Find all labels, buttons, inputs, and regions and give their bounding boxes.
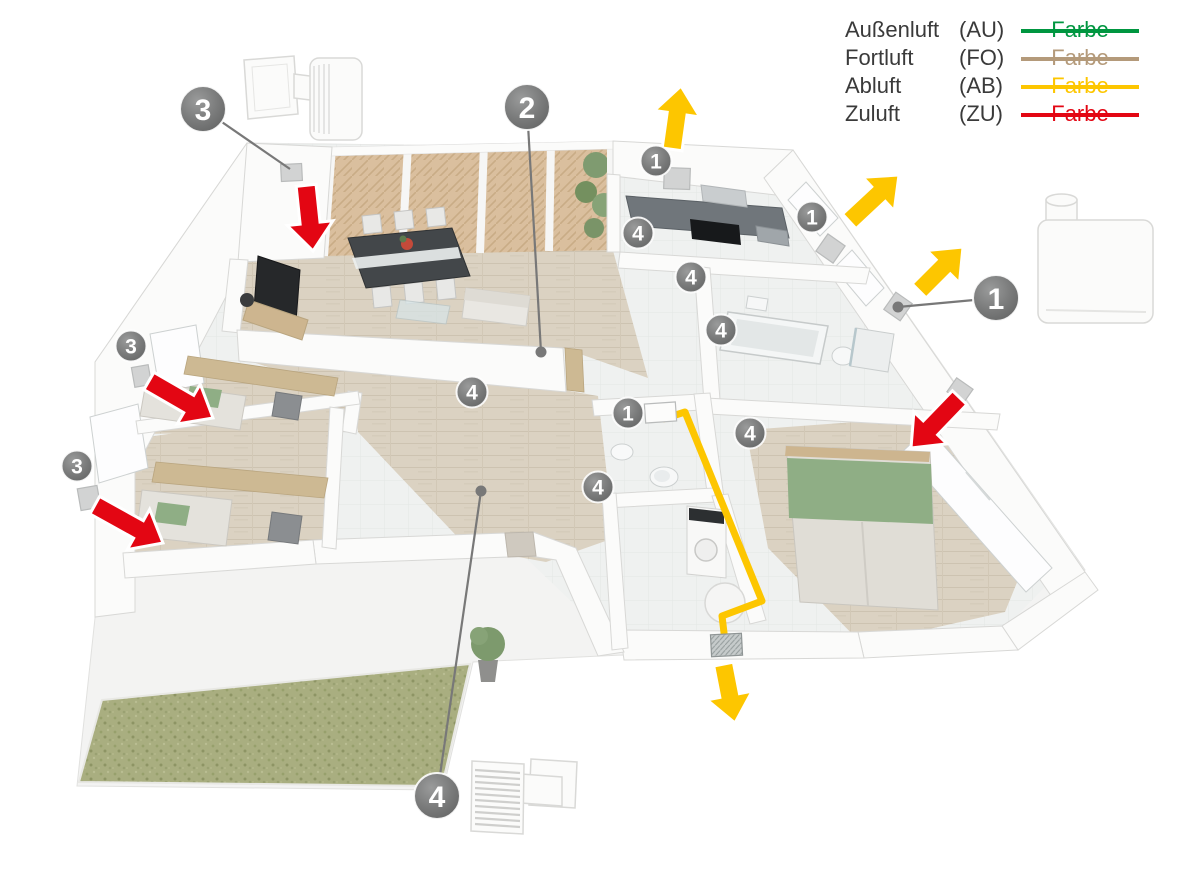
front-door-opening <box>505 532 536 557</box>
callout-marker-1: 1 <box>797 202 828 233</box>
wall-front-bedroom-right <box>858 626 1018 658</box>
legend-swatch-text: Farbe <box>1021 101 1139 127</box>
legend-code: (FO) <box>959 45 1021 71</box>
plant-pot <box>478 660 498 682</box>
marker-number: 1 <box>650 151 662 174</box>
wall-kitchen-left <box>607 174 620 252</box>
marker-number: 4 <box>632 223 644 246</box>
callout-marker-1: 1 <box>613 398 644 429</box>
bed-right <box>785 446 938 610</box>
stool-bedroom-1 <box>272 392 302 420</box>
legend-label: Zuluft <box>845 101 959 127</box>
legend-label: Außenluft <box>845 17 959 43</box>
entrance-plant <box>470 627 505 682</box>
leader-dot <box>536 347 547 358</box>
legend-code: (AB) <box>959 73 1021 99</box>
legend-row: Fortluft (FO) Farbe <box>845 44 1145 72</box>
airflow-arrow-abluft-exhaust <box>649 83 703 153</box>
legend-swatch-text: Farbe <box>1021 73 1139 99</box>
legend-row: Außenluft (AU) Farbe <box>845 16 1145 44</box>
callout-marker-3: 3 <box>116 331 147 362</box>
wc-sink <box>611 444 633 460</box>
supply-air-valve <box>281 163 303 181</box>
marker-number: 4 <box>685 267 697 290</box>
legend-swatch: Farbe <box>1021 16 1139 44</box>
device-wall-unit <box>244 56 362 140</box>
plant-bush-2 <box>470 627 488 645</box>
callout-marker-2: 2 <box>504 84 550 130</box>
flower-leaves <box>400 236 407 243</box>
callout-marker-4: 4 <box>414 773 460 819</box>
callout-marker-4: 4 <box>676 262 707 293</box>
grille-tube <box>521 774 562 806</box>
callout-marker-4: 4 <box>623 218 654 249</box>
marker-number: 1 <box>988 283 1005 316</box>
marker-number: 4 <box>744 423 756 446</box>
legend-label: Fortluft <box>845 45 959 71</box>
marker-number: 4 <box>592 477 604 500</box>
callout-marker-4: 4 <box>583 472 614 503</box>
leader-dot <box>893 302 904 313</box>
window-bedroom-2 <box>90 404 148 483</box>
callout-marker-4: 4 <box>735 418 766 449</box>
legend-code: (AU) <box>959 17 1021 43</box>
fan-box-body <box>1038 220 1153 323</box>
marker-number: 1 <box>622 403 634 426</box>
shower-tray <box>850 328 894 372</box>
leader-dot <box>476 486 487 497</box>
ventilation-floorplan-diagram: 321433144141444 Außenluft (AU) <box>0 0 1181 886</box>
marker-number: 3 <box>71 456 83 479</box>
bath-sink <box>746 296 768 311</box>
wall-unit-head <box>310 58 362 140</box>
airflow-arrow-abluft-exhaust <box>903 231 979 307</box>
callout-marker-3: 3 <box>62 451 93 482</box>
legend-label: Abluft <box>845 73 959 99</box>
marker-number: 1 <box>806 207 818 230</box>
marker-number: 2 <box>519 92 536 125</box>
marker-number: 4 <box>715 320 727 343</box>
stool-bedroom-2 <box>268 512 302 544</box>
floorplan-scene: 321433144141444 <box>0 0 1181 886</box>
legend-row: Zuluft (ZU) Farbe <box>845 100 1145 128</box>
legend: Außenluft (AU) Farbe Fortluft (FO) Farbe… <box>845 16 1145 128</box>
washer-door <box>695 539 717 561</box>
callout-marker-3: 3 <box>180 86 226 132</box>
marker-number: 3 <box>195 94 212 127</box>
speaker <box>240 293 254 307</box>
marker-number: 4 <box>429 781 446 814</box>
marker-number: 4 <box>466 382 478 405</box>
legend-swatch-text: Farbe <box>1021 45 1139 71</box>
device-grille <box>471 759 577 834</box>
legend-row: Abluft (AB) Farbe <box>845 72 1145 100</box>
bed-right-blanket <box>787 458 933 524</box>
airflow-arrow-abluft-exhaust <box>701 660 758 728</box>
doorway-sill <box>565 348 584 392</box>
legend-swatch: Farbe <box>1021 44 1139 72</box>
callout-marker-4: 4 <box>706 315 737 346</box>
wc-toilet-seat <box>654 470 670 482</box>
legend-code: (ZU) <box>959 101 1021 127</box>
bed-2-pillow <box>154 502 190 526</box>
callout-marker-4: 4 <box>457 377 488 408</box>
floor-grille <box>710 633 742 657</box>
device-fan-box <box>1038 194 1153 323</box>
legend-swatch: Farbe <box>1021 72 1139 100</box>
ceiling-exhaust-valve <box>644 402 676 423</box>
callout-marker-1: 1 <box>641 146 672 177</box>
legend-swatch: Farbe <box>1021 100 1139 128</box>
marker-number: 3 <box>125 336 137 359</box>
legend-swatch-text: Farbe <box>1021 17 1139 43</box>
fan-box-duct-top <box>1046 194 1077 206</box>
callout-marker-1: 1 <box>973 275 1019 321</box>
house <box>77 141 1098 790</box>
